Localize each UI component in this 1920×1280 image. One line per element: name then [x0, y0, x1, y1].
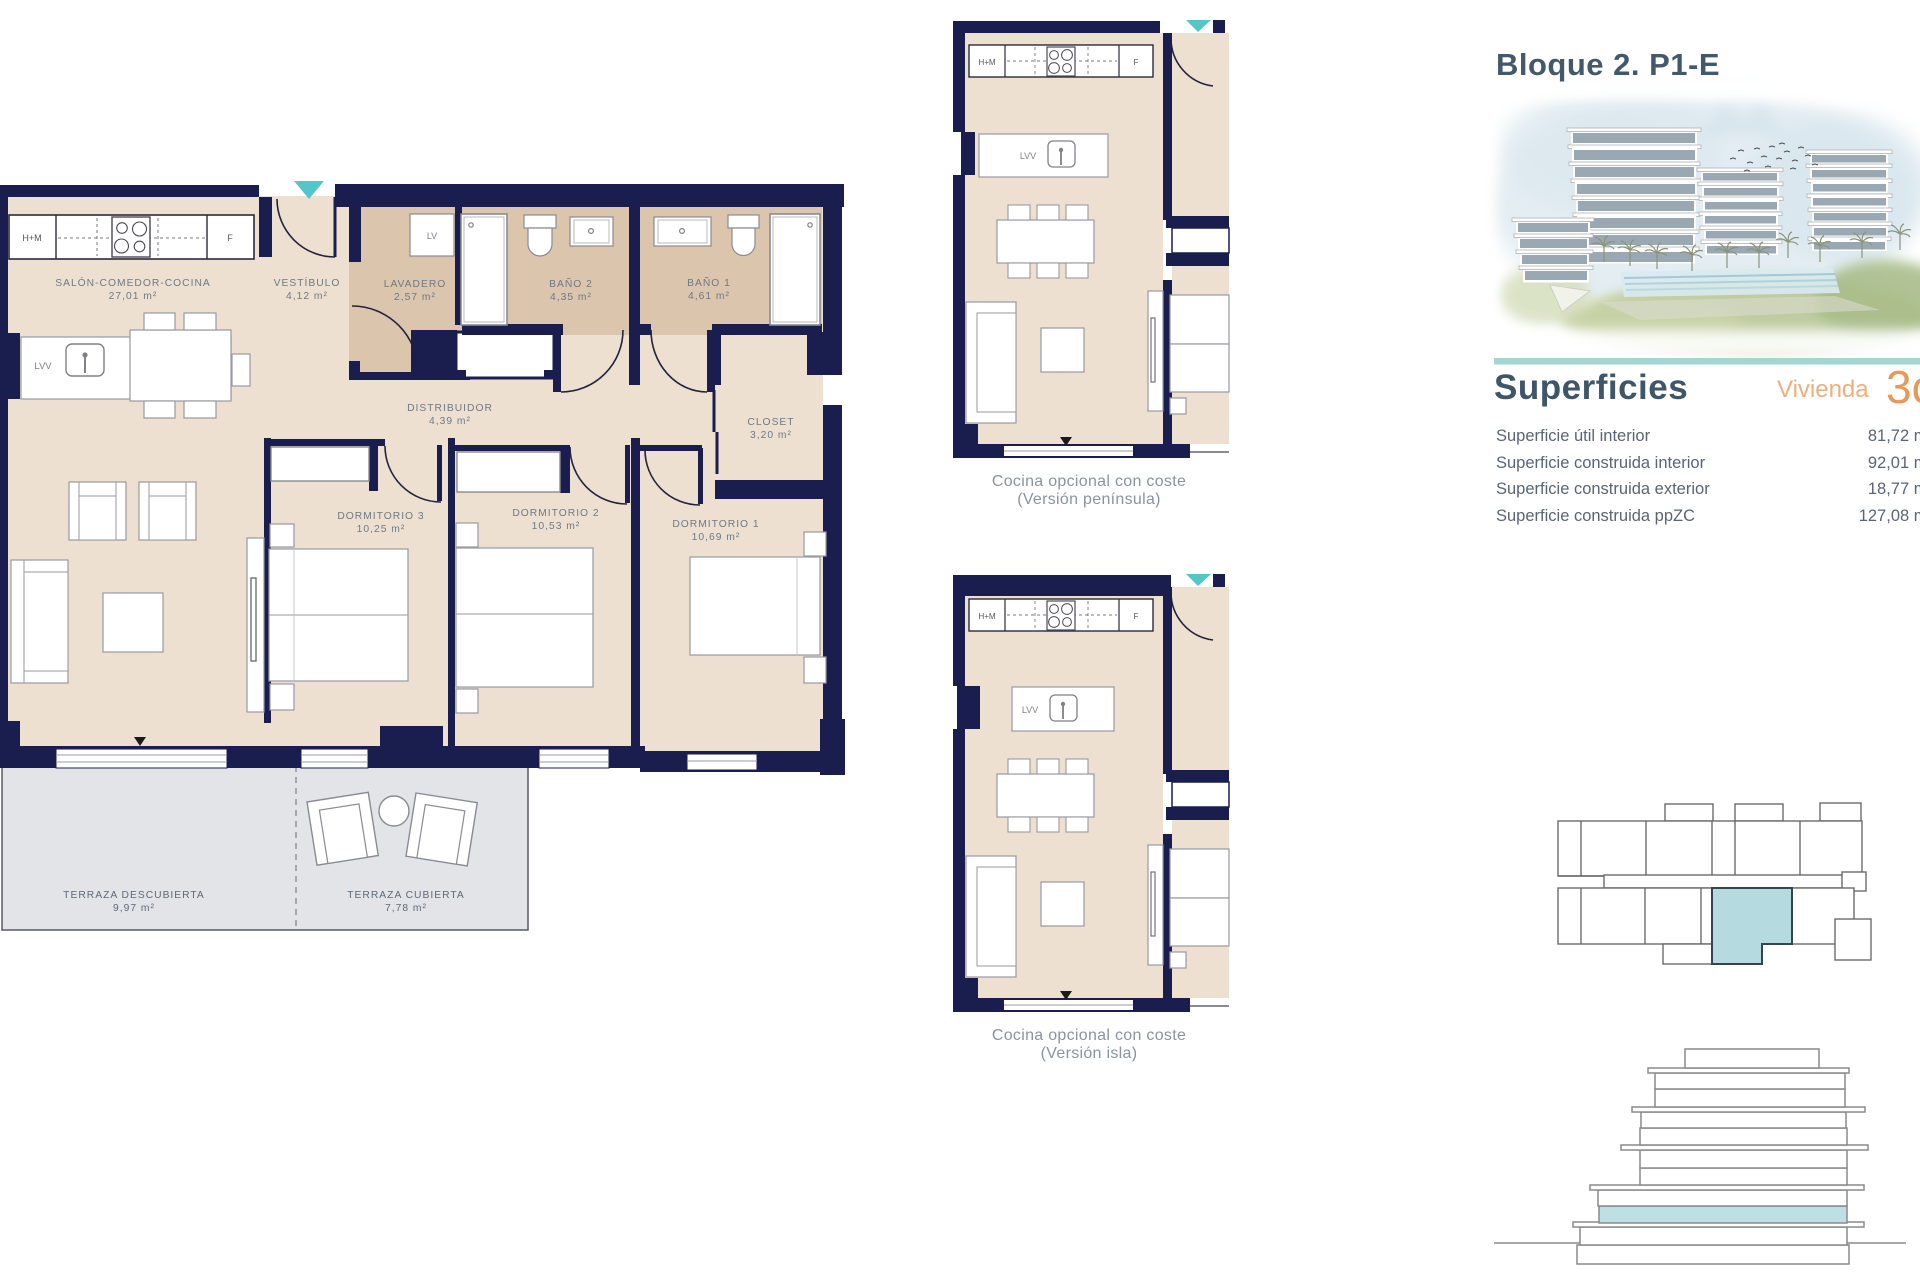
svg-text:(Versión isla): (Versión isla): [1041, 1045, 1138, 1062]
svg-text:3,20 m²: 3,20 m²: [750, 430, 792, 441]
svg-text:LVV: LVV: [34, 361, 52, 372]
svg-text:Vivienda: Vivienda: [1777, 376, 1869, 403]
svg-text:CLOSET: CLOSET: [747, 417, 794, 428]
svg-text:10,25 m²: 10,25 m²: [357, 524, 406, 535]
svg-text:F: F: [1134, 612, 1139, 621]
svg-text:7,78 m²: 7,78 m²: [385, 903, 427, 914]
svg-text:81,72 m²: 81,72 m²: [1868, 427, 1920, 445]
svg-text:127,08 m²: 127,08 m²: [1859, 507, 1920, 525]
svg-text:4,12 m²: 4,12 m²: [286, 291, 328, 302]
svg-text:LAVADERO: LAVADERO: [384, 279, 447, 290]
svg-text:DORMITORIO 1: DORMITORIO 1: [672, 519, 759, 530]
svg-text:TERRAZA DESCUBIERTA: TERRAZA DESCUBIERTA: [63, 890, 205, 901]
svg-text:Superficie construida interior: Superficie construida interior: [1496, 454, 1706, 472]
svg-text:F: F: [227, 233, 233, 243]
svg-text:(Versión península): (Versión península): [1017, 491, 1161, 508]
svg-text:F: F: [1134, 58, 1139, 67]
svg-text:DISTRIBUIDOR: DISTRIBUIDOR: [407, 403, 493, 414]
svg-text:Cocina opcional con coste: Cocina opcional con coste: [992, 473, 1186, 490]
svg-text:LVV: LVV: [1020, 151, 1036, 161]
svg-text:DORMITORIO 3: DORMITORIO 3: [337, 511, 424, 522]
svg-text:18,77 m²: 18,77 m²: [1868, 480, 1920, 498]
svg-text:Superficie construida exterior: Superficie construida exterior: [1496, 480, 1710, 498]
svg-text:BAÑO 2: BAÑO 2: [549, 277, 593, 290]
svg-text:H+M: H+M: [978, 58, 995, 67]
svg-text:4,35 m²: 4,35 m²: [550, 292, 592, 303]
svg-text:4,39 m²: 4,39 m²: [429, 416, 471, 427]
svg-text:LVV: LVV: [1022, 705, 1038, 715]
svg-text:2,57 m²: 2,57 m²: [394, 292, 436, 303]
svg-text:Cocina opcional con coste: Cocina opcional con coste: [992, 1027, 1186, 1044]
svg-text:BAÑO 1: BAÑO 1: [687, 276, 731, 289]
svg-text:DORMITORIO 2: DORMITORIO 2: [512, 508, 599, 519]
svg-text:LV: LV: [427, 231, 437, 241]
svg-text:Bloque 2. P1-E: Bloque 2. P1-E: [1496, 47, 1720, 82]
svg-text:VESTÍBULO: VESTÍBULO: [274, 276, 341, 289]
svg-text:Superficie construida ppZC: Superficie construida ppZC: [1496, 507, 1695, 525]
svg-text:4,61 m²: 4,61 m²: [688, 291, 730, 302]
svg-text:Superficie útil interior: Superficie útil interior: [1496, 427, 1651, 445]
svg-text:Superficies: Superficies: [1494, 368, 1688, 407]
svg-text:9,97 m²: 9,97 m²: [113, 903, 155, 914]
svg-text:H+M: H+M: [978, 612, 995, 621]
svg-text:10,69 m²: 10,69 m²: [692, 532, 741, 543]
svg-text:TERRAZA CUBIERTA: TERRAZA CUBIERTA: [347, 890, 464, 901]
svg-text:H+M: H+M: [22, 233, 41, 243]
svg-text:27,01 m²: 27,01 m²: [109, 291, 158, 302]
svg-text:92,01 m²: 92,01 m²: [1868, 454, 1920, 472]
svg-text:10,53 m²: 10,53 m²: [532, 521, 581, 532]
svg-text:3c: 3c: [1886, 361, 1920, 413]
svg-text:SALÓN-COMEDOR-COCINA: SALÓN-COMEDOR-COCINA: [55, 276, 211, 289]
